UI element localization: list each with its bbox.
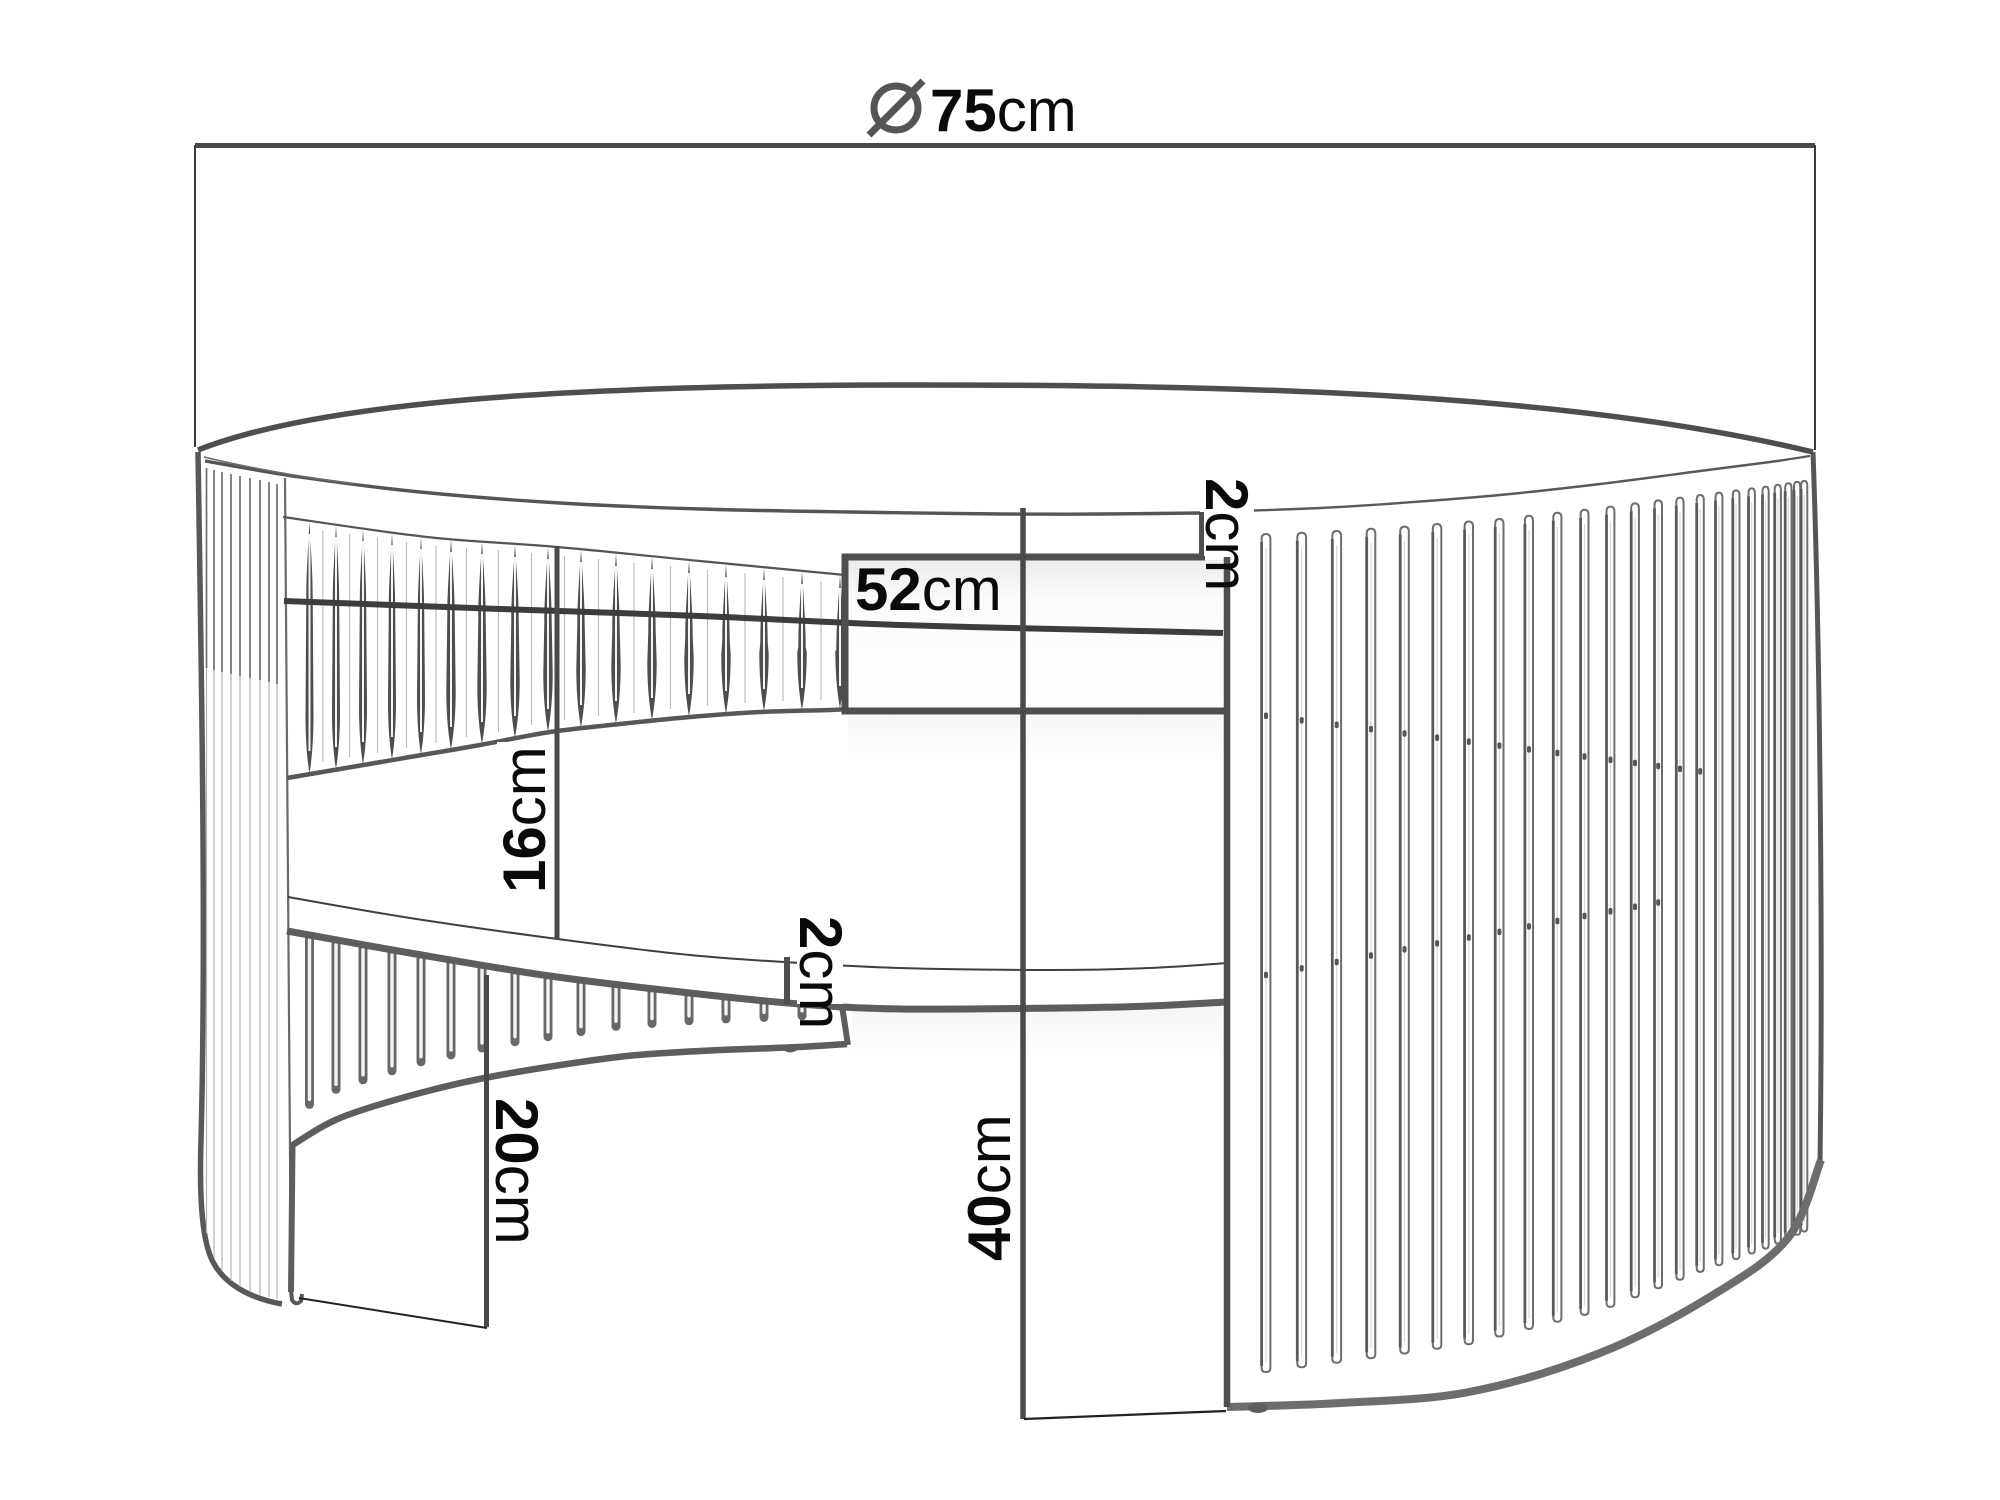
svg-text:20cm: 20cm: [483, 1098, 550, 1245]
svg-text:75cm: 75cm: [930, 77, 1077, 144]
svg-text:16cm: 16cm: [491, 746, 558, 893]
svg-text:2cm: 2cm: [1193, 478, 1260, 591]
svg-text:52cm: 52cm: [855, 556, 1002, 623]
svg-text:40cm: 40cm: [956, 1114, 1023, 1261]
svg-text:2cm: 2cm: [787, 916, 854, 1029]
